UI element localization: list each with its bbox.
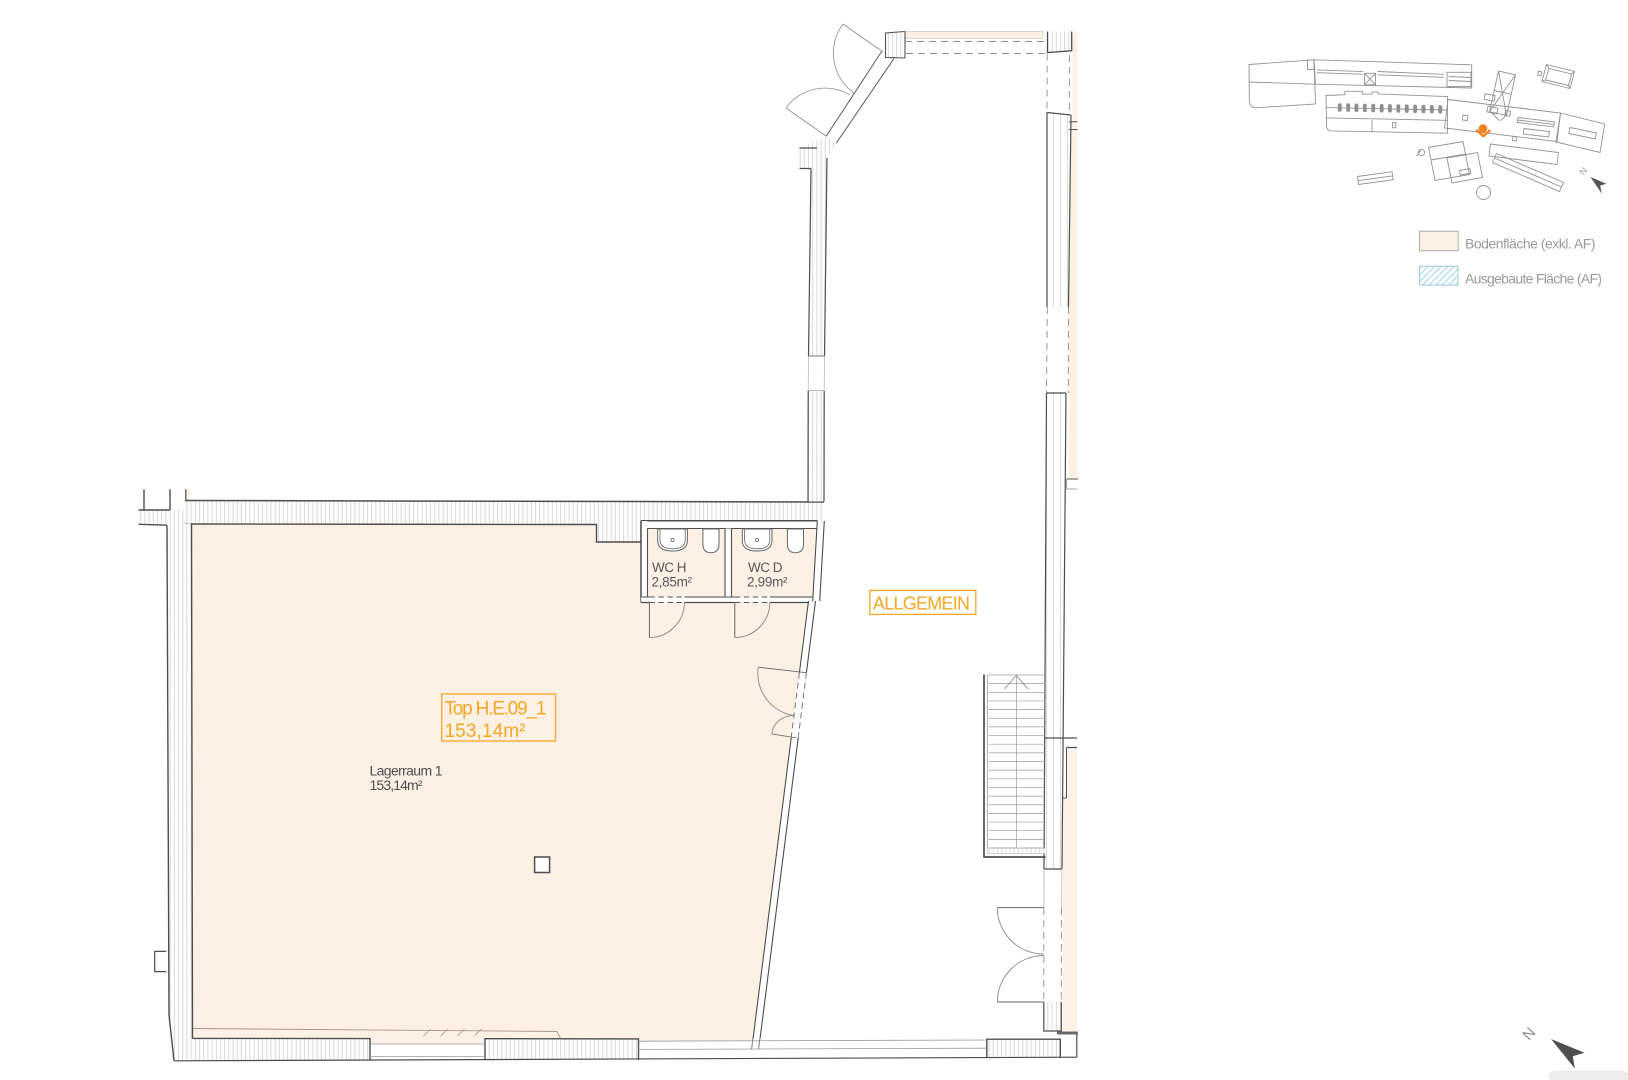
svg-text:153,14m²: 153,14m² — [445, 721, 526, 742]
svg-text:WC H: WC H — [652, 560, 687, 575]
svg-text:153,14m²: 153,14m² — [370, 777, 423, 793]
svg-text:Top H.E.09_1: Top H.E.09_1 — [445, 699, 547, 720]
svg-text:2,99m²: 2,99m² — [747, 575, 788, 590]
svg-text:2,85m²: 2,85m² — [652, 575, 693, 590]
svg-text:Bodenfläche (exkl. AF): Bodenfläche (exkl. AF) — [1465, 236, 1596, 252]
svg-text:WC D: WC D — [748, 560, 783, 575]
svg-text:N: N — [1519, 1024, 1539, 1043]
svg-text:ALLGEMEIN: ALLGEMEIN — [873, 594, 970, 614]
svg-text:Ausgebaute Fläche (AF): Ausgebaute Fläche (AF) — [1465, 271, 1602, 287]
svg-text:N: N — [1577, 165, 1589, 176]
